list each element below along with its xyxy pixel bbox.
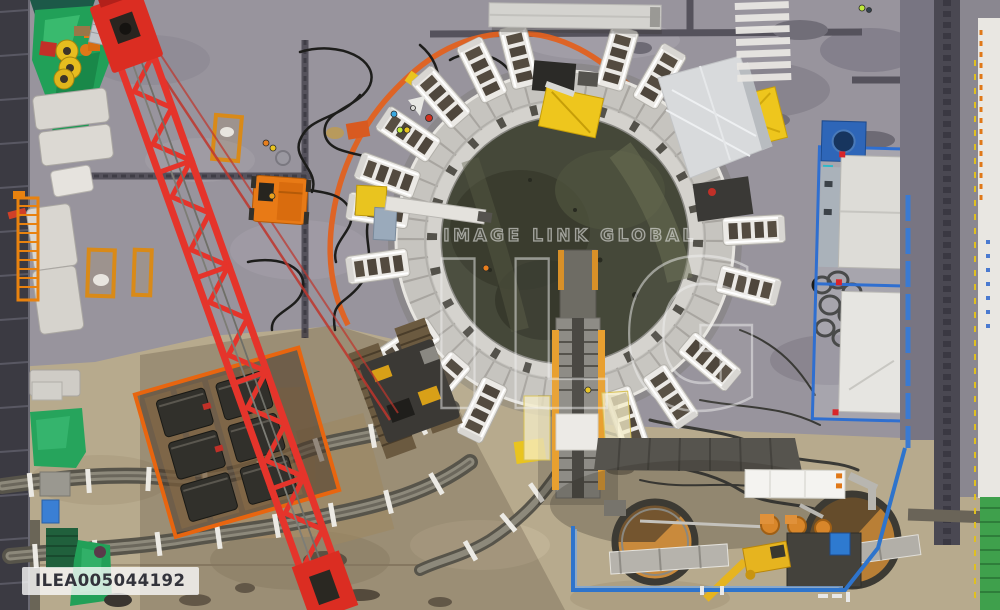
orange-dumper [248, 175, 311, 225]
aerial-construction-scene [0, 0, 1000, 610]
right-walkway [900, 0, 1000, 610]
image-id-badge: ILEA005044192 [22, 567, 199, 595]
steel-beam [489, 3, 662, 34]
stock-photo-frame: IMAGE LINK GLOBAL ILG ILEA005044192 [0, 0, 1000, 610]
